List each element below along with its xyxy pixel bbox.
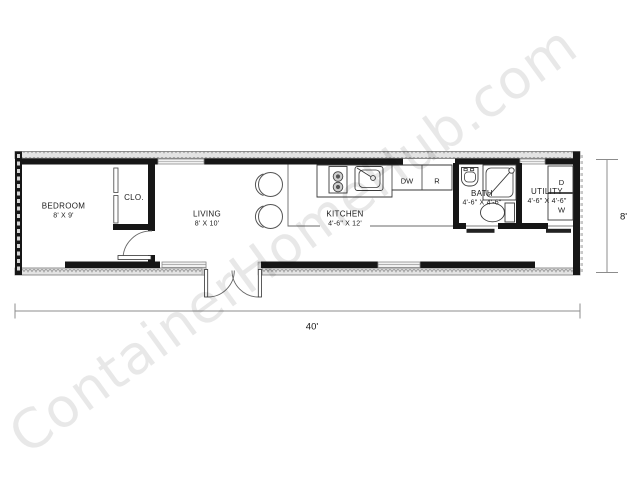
- right-end-wall: [573, 152, 580, 276]
- utility-label: UTILITY: [531, 187, 563, 196]
- bath-dims-label: 4'-6" X 4'-6": [462, 200, 501, 207]
- washer-label: W: [558, 206, 566, 215]
- bottom-corrugated-wall-right: [262, 268, 580, 275]
- closet-bifold-door: [114, 168, 118, 223]
- living-label: LIVING: [193, 210, 221, 219]
- depth-dimension-label: 8': [620, 212, 627, 223]
- bedroom-living-wall: [148, 163, 155, 231]
- bath-bottom-wall: [498, 223, 522, 229]
- bath-sliding-door: [466, 226, 498, 233]
- bath-bottom-wall: [453, 223, 466, 229]
- dryer-label: D: [559, 178, 565, 187]
- top-corrugated-wall: [15, 152, 580, 159]
- closet-wall: [113, 224, 155, 230]
- refrigerator-label: R: [434, 177, 440, 186]
- bedroom-label: BEDROOM: [42, 202, 85, 211]
- window: [520, 159, 545, 164]
- bath-utility-wall: [516, 163, 522, 229]
- depth-dimension: 8': [596, 160, 627, 273]
- bathroom-sink-icon: [462, 168, 479, 187]
- utility-dims-label: 4'-6" X 4'-6": [527, 198, 566, 205]
- window: [162, 262, 206, 268]
- floor-plan-page: BEDROOM 8' X 9' CLO. LIVING 8' X 10' KIT…: [0, 0, 640, 487]
- bedroom-dims-label: 8' X 9': [53, 213, 73, 220]
- bath-label: BATH: [471, 189, 493, 198]
- floor-plan-drawing: BEDROOM 8' X 9' CLO. LIVING 8' X 10' KIT…: [0, 0, 640, 487]
- window: [378, 262, 420, 268]
- window: [158, 159, 204, 164]
- utility-sliding-door: [546, 226, 573, 233]
- chair-icon: [255, 173, 282, 197]
- bottom-corrugated-wall-left: [15, 268, 206, 275]
- width-dimension: 40': [15, 304, 580, 333]
- watermark: ContainerHomeHub.com: [0, 13, 589, 467]
- utility-bottom-wall: [522, 223, 548, 229]
- bath-left-wall: [453, 163, 459, 229]
- living-dims-label: 8' X 10': [195, 221, 220, 228]
- bedroom-door: [118, 231, 152, 260]
- closet-label: CLO.: [124, 193, 144, 202]
- width-dimension-label: 40': [306, 322, 319, 333]
